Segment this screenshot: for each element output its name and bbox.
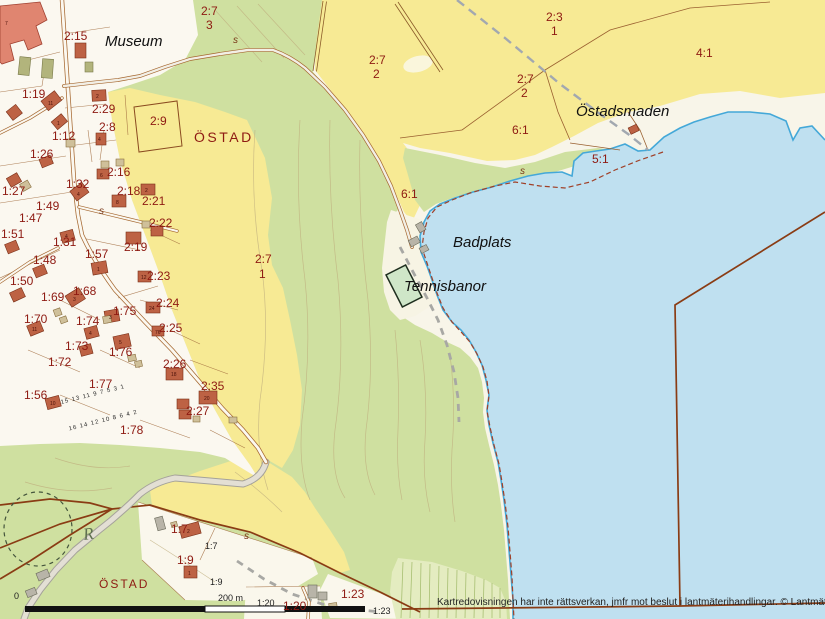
building-number: 4	[65, 234, 68, 240]
cadastral-map[interactable]: R	[0, 0, 825, 619]
building-number: 24	[149, 306, 155, 312]
building-number: 4	[77, 192, 80, 198]
building-number: 6	[100, 173, 103, 179]
building-number: 1	[97, 267, 100, 273]
building-number: 5	[119, 340, 122, 346]
building-number: 20	[204, 396, 210, 402]
building-number: 3	[73, 297, 76, 303]
building-number: 8	[116, 200, 119, 206]
building-number: 12	[141, 275, 147, 281]
building-number: 2	[145, 188, 148, 194]
building-number: 3	[109, 315, 112, 321]
map-graphic: R	[0, 0, 825, 619]
scale-bar	[25, 606, 365, 612]
building-number: 10	[50, 401, 56, 407]
building-number: 11	[32, 327, 37, 333]
building-number: 1	[57, 121, 60, 127]
building-number: 4	[89, 331, 92, 337]
building-number: 1	[188, 571, 191, 577]
building-number: 4	[98, 137, 101, 143]
building-number: 2	[96, 94, 99, 100]
building-number: 76	[155, 330, 161, 336]
building-number: 7	[5, 21, 8, 27]
fenced-lot-29	[134, 101, 182, 152]
building-number: 18	[171, 372, 177, 378]
building-number: 2	[187, 529, 190, 535]
building-number: 11	[48, 101, 53, 107]
